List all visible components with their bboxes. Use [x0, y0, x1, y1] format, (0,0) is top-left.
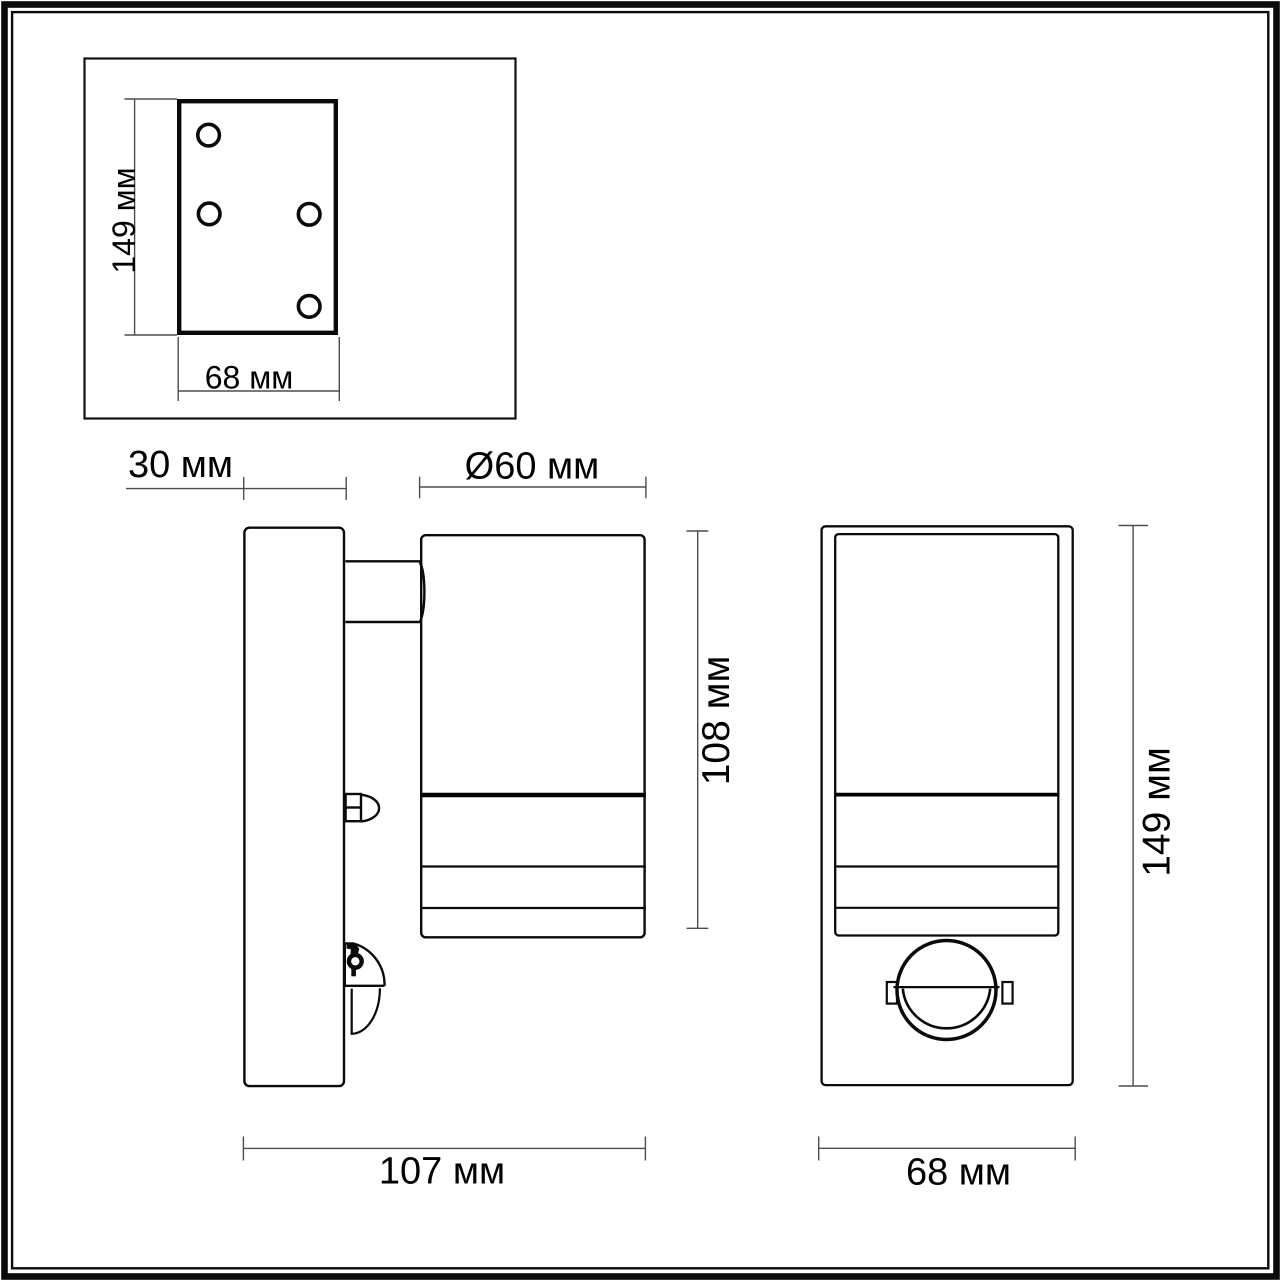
svg-text:Ø60 мм: Ø60 мм: [465, 445, 600, 487]
svg-text:30 мм: 30 мм: [128, 444, 233, 486]
svg-text:149 мм: 149 мм: [106, 167, 142, 273]
svg-text:68 мм: 68 мм: [906, 1151, 1011, 1193]
svg-text:149 мм: 149 мм: [1136, 747, 1179, 877]
svg-text:108 мм: 108 мм: [695, 656, 738, 786]
svg-text:107 мм: 107 мм: [379, 1151, 505, 1193]
svg-text:68 мм: 68 мм: [205, 359, 293, 395]
